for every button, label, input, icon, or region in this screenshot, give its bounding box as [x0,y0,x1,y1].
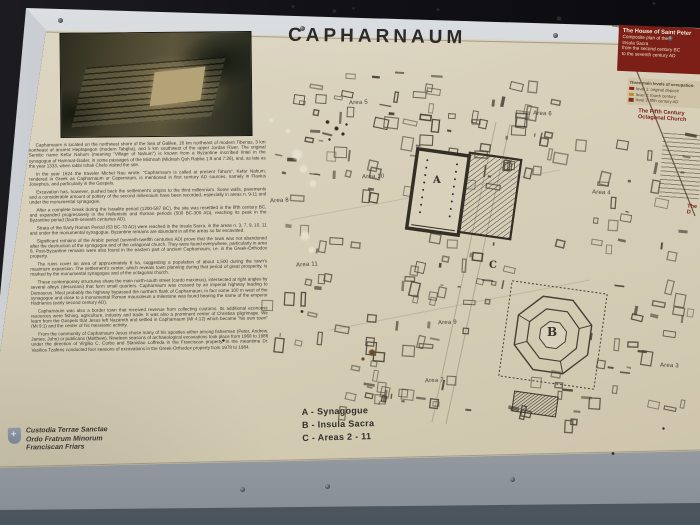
intro-paragraph: Excavation has, however, pushed back the… [29,186,266,205]
site-plan-map [260,70,700,438]
franciscan-crest-icon [8,428,21,444]
courtyard-plan [459,153,522,239]
intro-paragraph: The ruins cover an area of approximately… [30,258,267,277]
sidebar-body-text-lines [659,133,700,200]
frame-screw [240,487,245,492]
level-color-chip [629,87,634,90]
frame-screw [58,18,63,23]
sidebar-header-subtitle: Composite plan of theInsula Sacrafrom th… [622,34,700,60]
intro-paragraph: These contemporary structures share the … [30,277,267,306]
frame-screw [510,477,515,482]
credits-line: Franciscan Friars [26,443,108,453]
photo-of-information-sign: CAPHARNAUM Capharnaum is located on the … [0,0,700,525]
intro-paragraph: From the community of Capharnaum Jesus c… [31,328,268,352]
stain-mark [556,16,562,21]
frame-screw [300,26,305,31]
intro-paragraph: Strata of the Early Roman Period (63 BC-… [30,222,267,236]
credits-lines: Custodia Terrae SanctaeOrdo Fratrum Mino… [26,426,108,453]
stain-mark [652,2,656,5]
stain-mark [291,5,295,8]
intro-text-column: Capharnaum is located on the northwest s… [29,139,269,355]
stain-mark [611,452,615,455]
excavation-hatch-block [512,391,558,417]
frame-screw [553,33,558,38]
level-label: level 3: fifth century AD [635,97,678,105]
octagonal-church-plan [499,281,607,389]
aerial-photo-synagogue-highlight [150,67,206,107]
sign-title: CAPHARNAUM [288,25,467,49]
intro-paragraph: Capharnaum was also a border town that r… [31,305,268,329]
intro-paragraph: Significant remains of the Arabic period… [30,235,267,259]
aerial-photo [59,31,252,138]
level-color-chip [629,92,634,95]
stain-mark [436,8,440,11]
intro-paragraph: In the year 1624 the traveler Michel Nau… [29,168,266,187]
stain-mark [352,7,355,10]
map-legend: A - SynagogueB - Insula SacraC - Areas 2… [302,404,375,445]
level-color-chip [629,98,634,101]
frame-screw [325,484,330,489]
frame-screw [668,36,673,41]
map-legend-line: C - Areas 2 - 11 [302,430,375,445]
sidebar-section-title-fragment: The D [687,203,700,217]
intro-paragraph: After a complete break during the Israel… [29,204,266,223]
credits: Custodia Terrae SanctaeOrdo Fratrum Mino… [8,426,108,453]
sidebar-levels-legend: Three main levels of occupation: level 1… [626,78,700,110]
sidebar-header: The House of Saint Peter Composite plan … [617,25,700,75]
intro-paragraph: Capharnaum is located on the northwest s… [29,139,266,168]
stain-mark [332,9,337,13]
ruin-walls [262,71,697,432]
